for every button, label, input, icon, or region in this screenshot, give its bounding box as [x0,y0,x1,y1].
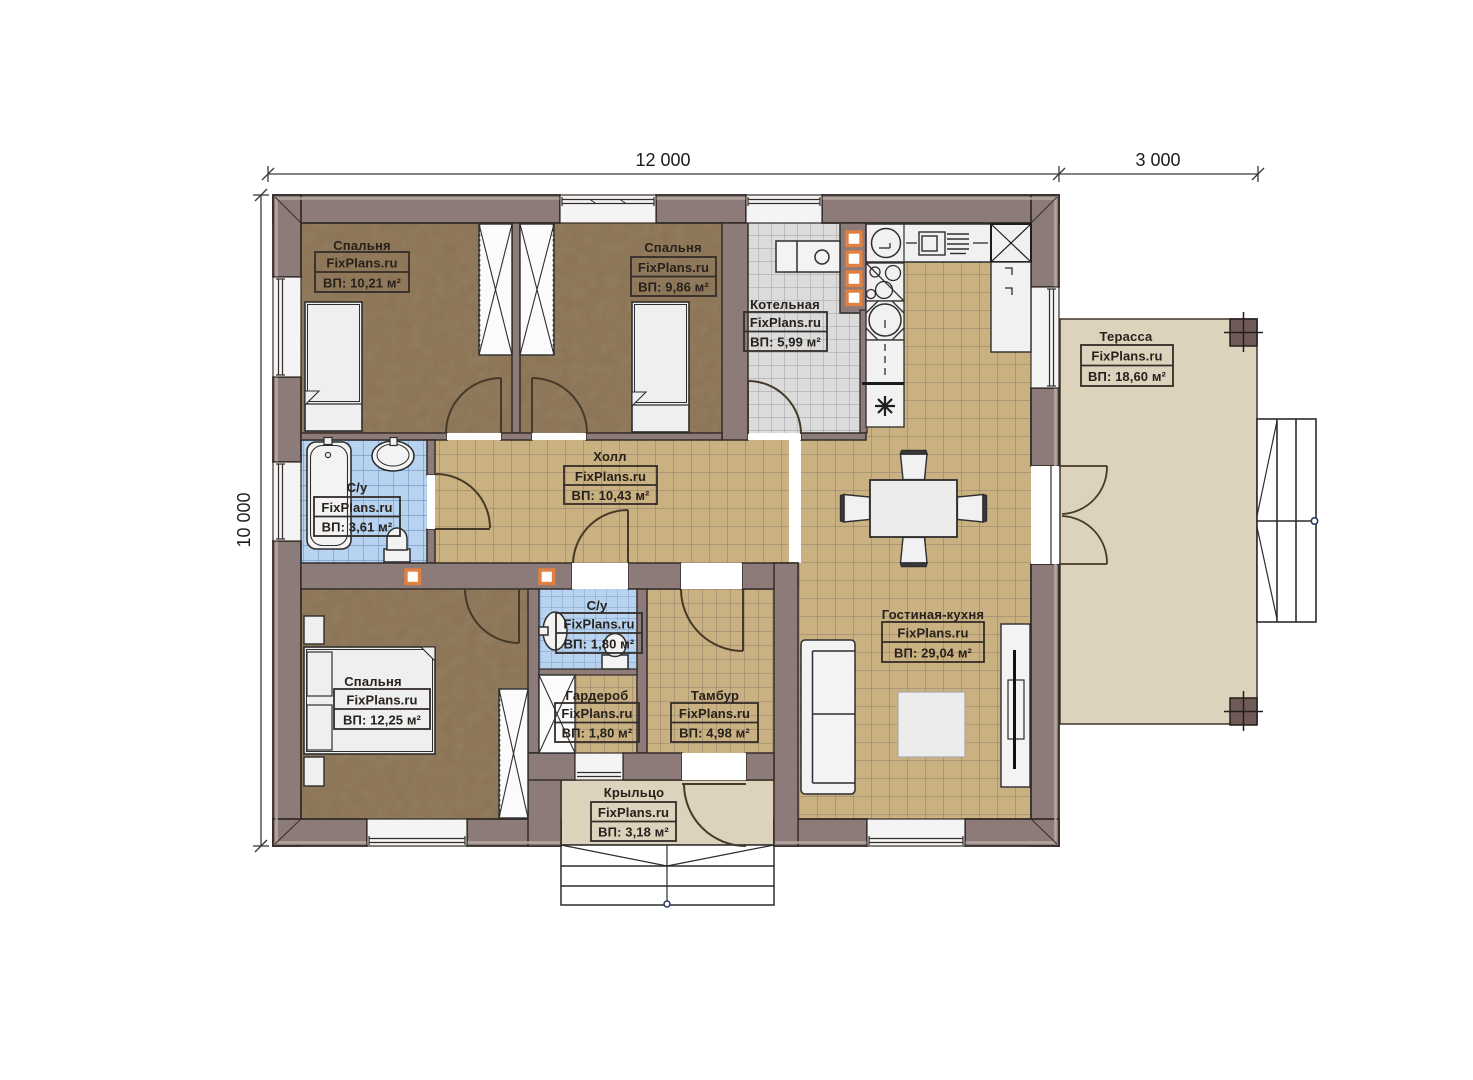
svg-text:Котельная: Котельная [750,297,820,312]
svg-text:FixPlans.ru: FixPlans.ru [321,500,392,515]
svg-text:Спальня: Спальня [333,238,391,253]
svg-text:FixPlans.ru: FixPlans.ru [1091,349,1162,364]
svg-text:ВП: 1,80 м²: ВП: 1,80 м² [562,726,633,741]
svg-text:ВП: 18,60 м²: ВП: 18,60 м² [1088,369,1167,384]
svg-text:Спальня: Спальня [344,674,402,689]
svg-text:FixPlans.ru: FixPlans.ru [598,805,669,820]
svg-text:3 000: 3 000 [1135,150,1180,170]
svg-text:Гостиная-кухня: Гостиная-кухня [882,607,984,622]
svg-text:ВП: 12,25 м²: ВП: 12,25 м² [343,713,422,728]
svg-text:ВП: 3,61 м²: ВП: 3,61 м² [322,520,393,535]
svg-text:ВП: 29,04 м²: ВП: 29,04 м² [894,646,973,661]
svg-text:Тамбур: Тамбур [691,688,739,703]
svg-text:Спальня: Спальня [644,240,702,255]
svg-text:ВП: 10,43 м²: ВП: 10,43 м² [572,488,651,503]
svg-text:ВП: 5,99 м²: ВП: 5,99 м² [750,335,821,350]
svg-text:Гардероб: Гардероб [565,688,628,703]
svg-text:Терасса: Терасса [1100,329,1154,344]
svg-text:FixPlans.ru: FixPlans.ru [561,706,632,721]
svg-text:12 000: 12 000 [635,150,690,170]
svg-text:Крыльцо: Крыльцо [604,785,665,800]
svg-text:FixPlans.ru: FixPlans.ru [750,315,821,330]
svg-text:FixPlans.ru: FixPlans.ru [346,693,417,708]
svg-text:FixPlans.ru: FixPlans.ru [679,706,750,721]
svg-text:С/у: С/у [347,480,368,495]
svg-text:FixPlans.ru: FixPlans.ru [897,626,968,641]
svg-text:С/у: С/у [587,598,608,613]
svg-text:FixPlans.ru: FixPlans.ru [326,256,397,271]
svg-text:10 000: 10 000 [234,492,254,547]
svg-text:ВП: 1,80 м²: ВП: 1,80 м² [564,637,635,652]
svg-text:ВП: 9,86 м²: ВП: 9,86 м² [638,280,709,295]
svg-text:FixPlans.ru: FixPlans.ru [575,469,646,484]
svg-text:FixPlans.ru: FixPlans.ru [563,617,634,632]
svg-text:ВП: 3,18 м²: ВП: 3,18 м² [598,825,669,840]
svg-text:FixPlans.ru: FixPlans.ru [638,260,709,275]
svg-text:ВП: 4,98 м²: ВП: 4,98 м² [679,726,750,741]
svg-text:Холл: Холл [593,449,626,464]
svg-text:ВП: 10,21 м²: ВП: 10,21 м² [323,276,402,291]
